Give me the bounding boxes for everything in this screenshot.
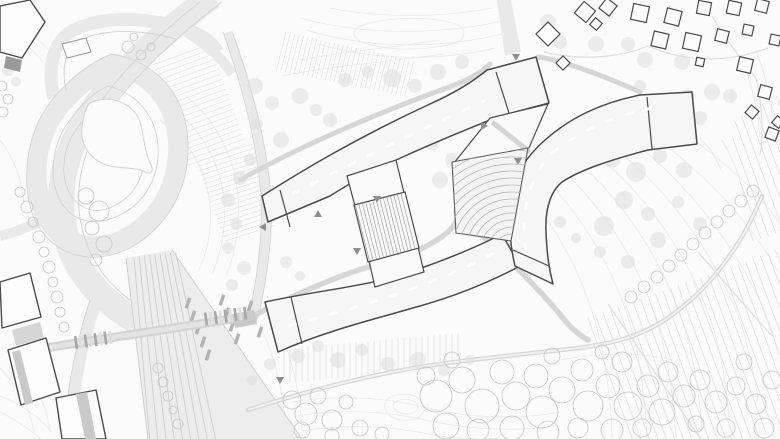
- house-footprint: [574, 1, 595, 22]
- tree-canopy: [264, 358, 276, 370]
- vineyard-row: [775, 92, 780, 218]
- house-footprint: [590, 18, 603, 31]
- tree-canopy: [449, 367, 475, 393]
- platform-dash: [219, 294, 226, 306]
- vineyard-row: [693, 280, 751, 438]
- house-footprint: [683, 33, 702, 52]
- tree-canopy: [674, 54, 690, 70]
- slope-hatch-line: [212, 188, 268, 206]
- tree-canopy: [3, 94, 13, 104]
- vineyard-row: [738, 264, 780, 422]
- tree-canopy: [594, 216, 614, 236]
- house-footprint: [664, 8, 682, 26]
- tree-canopy: [221, 193, 235, 207]
- tree-canopy: [323, 113, 337, 127]
- tree-canopy: [711, 216, 723, 228]
- tree-canopy: [280, 256, 292, 268]
- tree-canopy: [383, 69, 401, 87]
- direction-marker: [512, 54, 520, 61]
- tree-canopy: [687, 238, 699, 250]
- tree-canopy: [626, 162, 646, 182]
- tree-canopy: [43, 261, 55, 273]
- slope-hatch-line: [184, 139, 244, 161]
- contour-line: [560, 354, 672, 360]
- tree-canopy: [723, 205, 735, 217]
- loop-grass-island: [82, 99, 152, 173]
- tree-canopy: [634, 80, 646, 92]
- slope-hatch-line: [155, 59, 215, 81]
- contour-line: [0, 140, 24, 204]
- slope-hatch-line: [276, 32, 286, 72]
- tree-canopy: [568, 418, 588, 438]
- tree-canopy: [612, 352, 632, 372]
- tree-canopy: [615, 191, 633, 209]
- tree-canopy: [325, 429, 339, 439]
- tree-canopy: [571, 233, 581, 243]
- house-footprint: [745, 105, 759, 119]
- tree-canopy: [226, 279, 238, 291]
- vineyard-row: [656, 294, 714, 439]
- tree-canopy: [356, 344, 368, 356]
- slope-hatch-line: [182, 134, 242, 156]
- house-footprint: [726, 0, 741, 15]
- house-footprint: [631, 4, 650, 23]
- vineyard-row: [708, 275, 766, 433]
- tree-canopy: [291, 349, 305, 363]
- building-west-a: [0, 273, 41, 328]
- slope-hatch-line: [316, 41, 326, 81]
- tree-canopy: [51, 291, 63, 303]
- direction-marker: [314, 210, 322, 217]
- tree-canopy: [330, 352, 346, 368]
- tree-canopy: [55, 307, 65, 317]
- tree-canopy: [251, 118, 263, 130]
- tree-canopy: [653, 149, 667, 163]
- tree-canopy: [244, 154, 256, 166]
- tree-canopy: [59, 322, 69, 332]
- tree-canopy: [0, 81, 7, 91]
- tree-canopy: [490, 360, 514, 384]
- north-road: [497, 0, 521, 56]
- slope-hatch-line: [285, 34, 295, 74]
- tree-canopy: [467, 419, 489, 439]
- tree-canopy: [633, 419, 651, 437]
- tree-canopy: [614, 392, 642, 420]
- slope-hatch-line: [157, 64, 217, 86]
- tree-canopy: [430, 64, 446, 80]
- slope-hatch-line: [230, 236, 286, 254]
- contour-line: [300, 18, 498, 31]
- tree-canopy: [672, 196, 684, 208]
- tree-canopy: [641, 207, 655, 221]
- tree-canopy: [273, 132, 289, 148]
- tree-canopy: [594, 246, 606, 258]
- tree-canopy: [625, 291, 637, 303]
- site-plan-canvas: [0, 0, 780, 439]
- tree-canopy: [89, 201, 109, 221]
- contour-line: [318, 44, 495, 57]
- tree-canopy: [130, 33, 138, 41]
- tree-canopy: [649, 399, 675, 425]
- tree-canopy: [381, 357, 395, 371]
- house-footprint: [715, 29, 730, 44]
- slope-hatch-line: [294, 36, 304, 76]
- tree-canopy: [727, 377, 745, 395]
- slope-hatch-line: [298, 37, 308, 77]
- slope-hatch-line: [289, 35, 299, 75]
- tree-canopy: [292, 88, 308, 104]
- tree-canopy: [573, 391, 603, 421]
- contour-line: [330, 8, 492, 16]
- slope-hatch-line: [226, 228, 282, 246]
- tree-canopy: [295, 271, 305, 281]
- tree-canopy: [352, 420, 368, 436]
- vineyard-row: [768, 253, 780, 411]
- slope-hatch-line: [186, 144, 246, 166]
- tree-canopy: [247, 78, 263, 94]
- contour-line: [393, 399, 418, 414]
- tree-canopy: [375, 427, 389, 439]
- tree-canopy: [746, 394, 766, 414]
- tree-canopy: [705, 391, 727, 413]
- tree-canopy: [524, 364, 548, 388]
- contour-line: [296, 412, 558, 430]
- slope-hatch-line: [311, 40, 321, 80]
- vineyard-row: [716, 272, 774, 430]
- tree-canopy: [621, 37, 635, 51]
- slope-hatch-line: [181, 129, 241, 151]
- tree-canopy: [651, 271, 663, 283]
- tree-canopy: [465, 355, 475, 365]
- tree-canopy: [408, 79, 422, 93]
- tree-canopy: [693, 217, 707, 231]
- direction-marker: [353, 248, 361, 255]
- tree-canopy: [554, 216, 566, 228]
- building-top-left: [0, 0, 45, 58]
- house-footprint: [696, 0, 711, 15]
- tree-canopy: [222, 242, 234, 254]
- slope-hatch-line: [320, 42, 330, 82]
- tree-canopy: [39, 247, 49, 257]
- tree-canopy: [233, 171, 247, 185]
- tree-canopy: [658, 362, 678, 382]
- tree-canopy: [0, 107, 8, 117]
- slope-hatch-line: [329, 44, 339, 84]
- house-footprint: [769, 34, 780, 46]
- tree-canopy: [339, 395, 353, 409]
- tree-canopy: [85, 221, 99, 235]
- tree-canopy: [11, 77, 21, 87]
- tree-canopy: [621, 255, 635, 269]
- tree-canopy: [230, 218, 242, 230]
- tree-canopy: [33, 231, 45, 243]
- site-plan-screenshot: [0, 0, 780, 439]
- platform-dash: [257, 326, 264, 338]
- tree-canopy: [433, 413, 459, 439]
- house-footprint: [755, 0, 770, 13]
- tree-canopy: [48, 277, 58, 287]
- vineyard-row: [678, 286, 736, 439]
- tree-canopy: [455, 55, 469, 69]
- vineyard-row: [686, 283, 744, 439]
- tree-canopy: [502, 382, 530, 410]
- tree-canopy: [322, 410, 342, 430]
- tree-canopy: [312, 340, 324, 352]
- direction-marker: [276, 377, 284, 384]
- slope-hatch-line: [324, 43, 334, 83]
- vineyard-row: [708, 115, 754, 241]
- tree-canopy: [310, 104, 322, 116]
- slope-hatch-line: [307, 39, 317, 79]
- tree-canopy: [362, 66, 374, 78]
- slope-hatch-line: [280, 33, 290, 73]
- vineyard-row: [723, 269, 780, 427]
- tree-canopy: [465, 389, 499, 423]
- tree-canopy: [637, 52, 653, 68]
- tree-canopy: [15, 187, 25, 197]
- tree-canopy: [723, 89, 737, 103]
- tree-canopy: [571, 359, 593, 381]
- contour-line: [306, 30, 502, 45]
- tree-canopy: [676, 162, 692, 178]
- tree-canopy: [78, 188, 94, 204]
- tree-canopy: [690, 370, 710, 390]
- slope-hatch-line: [373, 54, 383, 94]
- house-footprint: [742, 24, 754, 36]
- tree-canopy: [588, 36, 604, 52]
- tree-canopy: [247, 375, 257, 385]
- house-footprint: [556, 56, 570, 70]
- tree-canopy: [410, 352, 426, 368]
- tree-canopy: [21, 201, 33, 213]
- tree-canopy: [537, 421, 559, 439]
- tree-canopy: [237, 261, 251, 275]
- house-footprint: [651, 31, 669, 49]
- slope-hatch-line: [154, 54, 214, 76]
- tree-canopy: [549, 377, 575, 403]
- house-footprint: [695, 57, 704, 66]
- upper-esplanade-path-east: [538, 57, 640, 92]
- tree-canopy: [417, 367, 435, 385]
- platform-dash: [234, 333, 241, 345]
- slope-hatch-line: [351, 49, 361, 89]
- house-footprint: [737, 57, 754, 74]
- tree-canopy: [438, 364, 450, 376]
- tree-canopy: [763, 371, 780, 389]
- tree-canopy: [500, 416, 524, 439]
- building-complex: [262, 57, 697, 354]
- tree-canopy: [663, 260, 675, 272]
- house-footprint: [758, 85, 773, 100]
- tree-canopy: [650, 232, 666, 248]
- tree-canopy: [295, 403, 317, 425]
- tree-canopy: [736, 354, 752, 370]
- tree-canopy: [265, 96, 279, 110]
- contour-line: [302, 427, 500, 439]
- contour-line: [292, 398, 560, 417]
- tree-canopy: [432, 172, 448, 188]
- tree-canopy: [338, 73, 352, 87]
- tree-canopy: [717, 419, 735, 437]
- house-footprint: [599, 0, 617, 16]
- tree-canopy: [704, 84, 720, 100]
